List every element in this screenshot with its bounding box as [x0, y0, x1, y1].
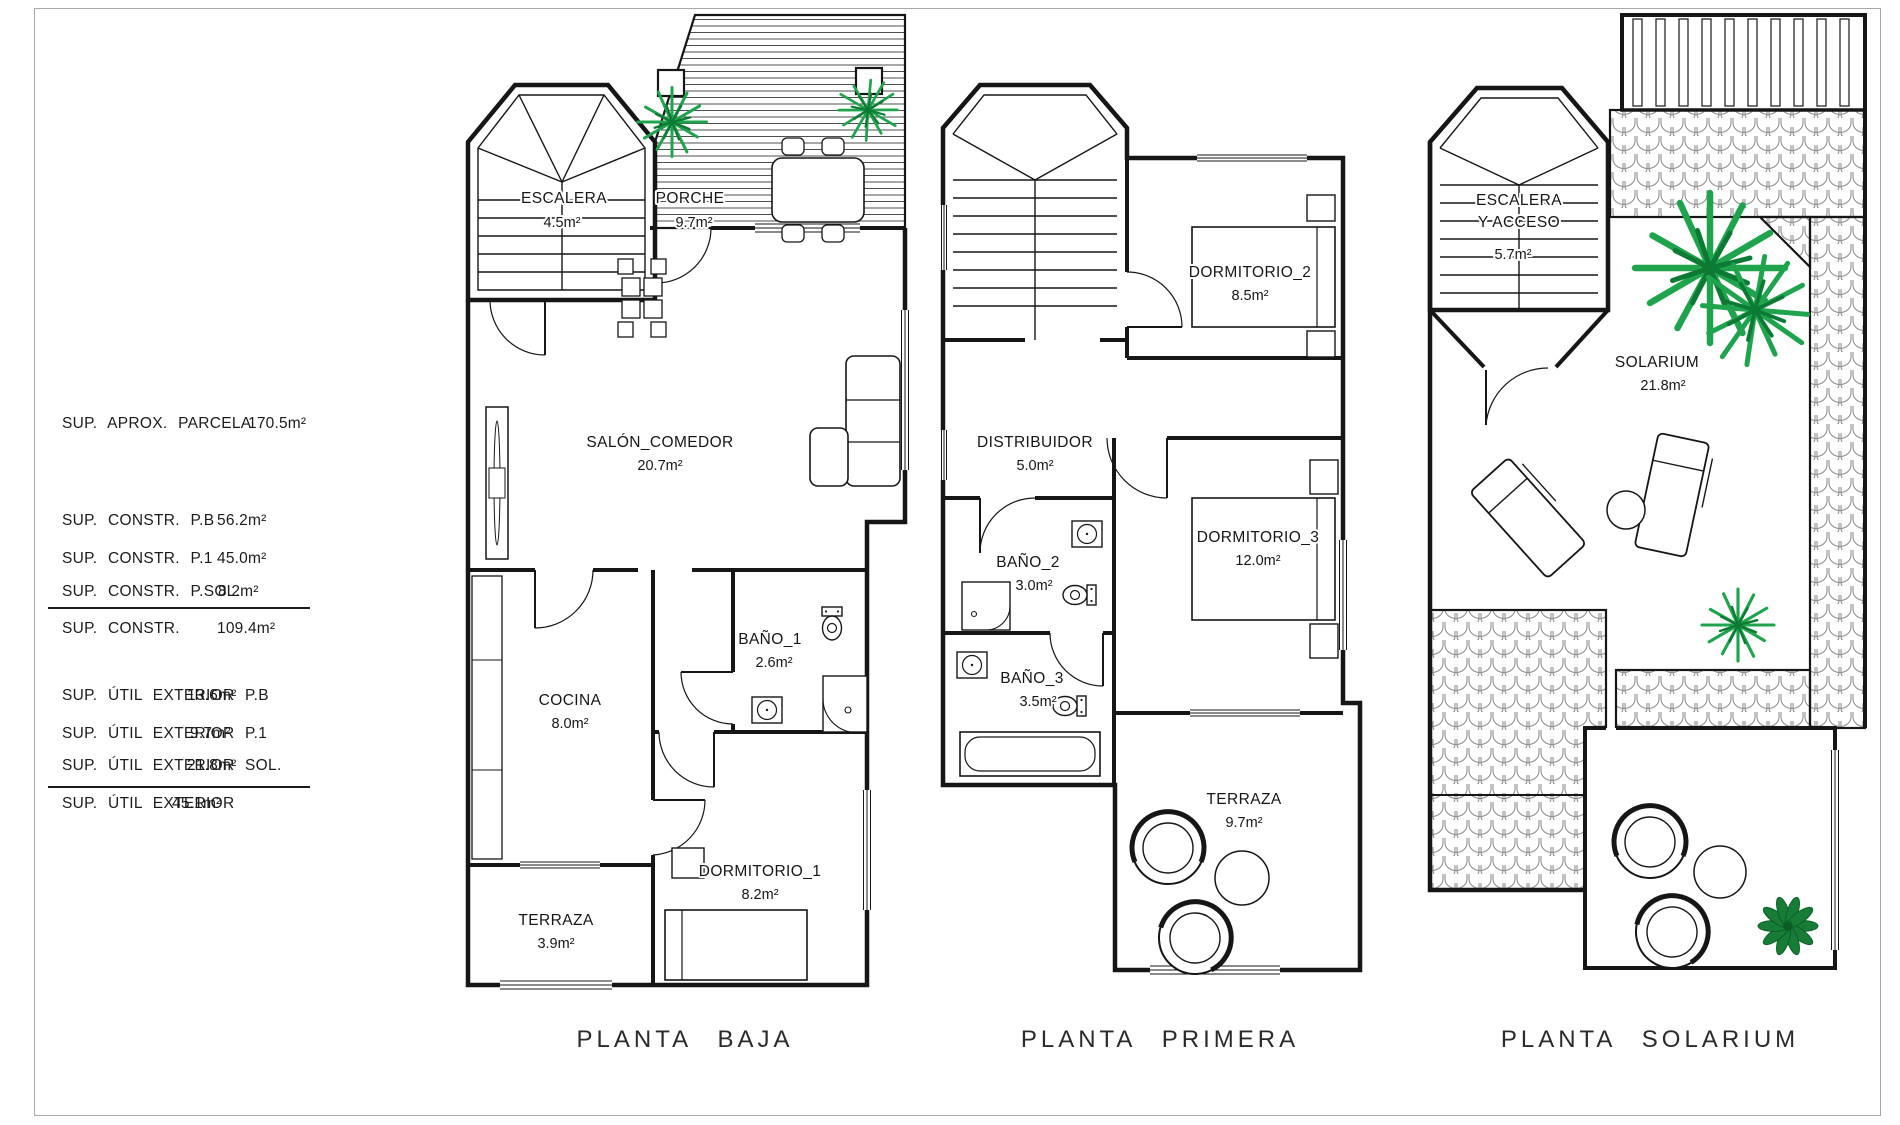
room-area-distribuidor: 5.0m² — [1016, 458, 1053, 474]
room-area-bano1: 2.6m² — [755, 655, 792, 671]
table-row: SUP. ÚTIL EXTERIOR 45.1m² — [62, 795, 234, 813]
room-area-terraza-p1: 9.7m² — [1225, 815, 1262, 831]
room-area-terraza-pb: 3.9m² — [537, 936, 574, 952]
room-label-escalera: ESCALERA — [521, 190, 607, 207]
room-label-terraza-p1: TERRAZA — [1206, 791, 1281, 808]
room-label-dormitorio3: DORMITORIO_3 — [1197, 529, 1320, 546]
staircase — [953, 95, 1117, 340]
row-label: SUP. CONSTR. — [62, 620, 180, 637]
row-value: 8.2m² — [218, 583, 259, 601]
room-area-bano2: 3.0m² — [1015, 578, 1052, 594]
row-value: 13.6m² — [187, 687, 236, 705]
sum-divider — [48, 786, 310, 788]
sum-divider — [48, 607, 310, 609]
doors — [490, 228, 733, 855]
floor-plan-sheet: SUP. APROX. PARCELA 170.5m² SUP. CONSTR.… — [0, 0, 1900, 1125]
solarium-furniture — [1470, 433, 1715, 579]
room-label-escalera-acceso-2: Y ACCESO — [1478, 214, 1560, 231]
row-label: SUP. ÚTIL EXTERIOR P.B — [62, 687, 269, 704]
room-area-escalera: 4.5m² — [543, 215, 580, 231]
room-label-cocina: COCINA — [539, 692, 602, 709]
table-row: SUP. CONSTR. P.SOL. 8.2m² — [62, 583, 240, 601]
table-row: SUP. CONSTR. P.B 56.2m² — [62, 512, 214, 530]
room-area-dormitorio3: 12.0m² — [1235, 553, 1280, 569]
row-value: 21.8m² — [187, 757, 236, 775]
row-label: SUP. CONSTR. P.SOL. — [62, 583, 240, 600]
row-label: SUP. ÚTIL EXTERIOR P.1 — [62, 725, 267, 742]
table-row: SUP. ÚTIL EXTERIOR SOL. 21.8m² — [62, 757, 282, 775]
room-area-salon: 20.7m² — [637, 458, 682, 474]
row-value: 109.4m² — [217, 620, 275, 638]
room-label-salon: SALÓN_COMEDOR — [586, 434, 733, 451]
room-label-distribuidor: DISTRIBUIDOR — [977, 434, 1093, 451]
table-row: SUP. APROX. PARCELA 170.5m² — [62, 415, 251, 433]
floor-plan-planta-solarium: ESCALERA Y ACCESO 5.7m² SOLARIUM 21.8m² — [1420, 10, 1880, 1000]
row-value: 56.2m² — [217, 512, 266, 530]
palm-plant-icon — [1702, 589, 1774, 661]
room-area-bano3: 3.5m² — [1019, 694, 1056, 710]
caption-planta-solarium: PLANTA SOLARIUM — [1420, 1026, 1880, 1054]
row-label: SUP. CONSTR. P.1 — [62, 550, 213, 567]
room-area-dormitorio2: 8.5m² — [1231, 288, 1268, 304]
table-row: SUP. ÚTIL EXTERIOR P.B 13.6m² — [62, 687, 269, 705]
room-area-escalera-acceso: 5.7m² — [1494, 247, 1531, 263]
room-area-porche: 9.7m² — [675, 215, 712, 231]
room-area-cocina: 8.0m² — [551, 716, 588, 732]
row-value: 170.5m² — [248, 415, 306, 433]
table-row: SUP. ÚTIL EXTERIOR P.1 9.7m² — [62, 725, 267, 743]
room-label-bano3: BAÑO_3 — [1000, 670, 1064, 687]
row-label: SUP. CONSTR. P.B — [62, 512, 214, 529]
pergola-slats — [1622, 15, 1865, 110]
floor-plan-planta-baja: ESCALERA 4.5m² PORCHE 9.7m² SALÓN_COMEDO… — [460, 10, 910, 1000]
row-label: SUP. APROX. PARCELA — [62, 415, 251, 432]
room-label-porche: PORCHE — [656, 190, 725, 207]
table-row: SUP. CONSTR. 109.4m² — [62, 620, 180, 638]
room-label-dormitorio2: DORMITORIO_2 — [1189, 264, 1312, 281]
row-value: 9.7m² — [190, 725, 231, 743]
floor-plan-planta-primera: DORMITORIO_2 8.5m² DISTRIBUIDOR 5.0m² BA… — [940, 10, 1380, 1000]
room-label-solarium: SOLARIUM — [1615, 354, 1699, 371]
row-value: 45.1m² — [172, 795, 221, 813]
terrace-furniture — [1132, 812, 1269, 989]
row-label: SUP. ÚTIL EXTERIOR SOL. — [62, 757, 282, 774]
room-label-dormitorio1: DORMITORIO_1 — [699, 863, 822, 880]
room-label-escalera-acceso-1: ESCALERA — [1476, 192, 1562, 209]
table-row: SUP. CONSTR. P.1 45.0m² — [62, 550, 213, 568]
room-area-solarium: 21.8m² — [1640, 378, 1685, 394]
room-area-dormitorio1: 8.2m² — [741, 887, 778, 903]
furniture — [472, 138, 900, 980]
terrace — [1585, 728, 1840, 982]
caption-planta-baja: PLANTA BAJA — [460, 1026, 910, 1054]
row-value: 45.0m² — [217, 550, 266, 568]
room-label-terraza-pb: TERRAZA — [518, 912, 593, 929]
room-label-bano1: BAÑO_1 — [738, 631, 802, 648]
caption-planta-primera: PLANTA PRIMERA — [940, 1026, 1380, 1054]
room-label-bano2: BAÑO_2 — [996, 554, 1060, 571]
